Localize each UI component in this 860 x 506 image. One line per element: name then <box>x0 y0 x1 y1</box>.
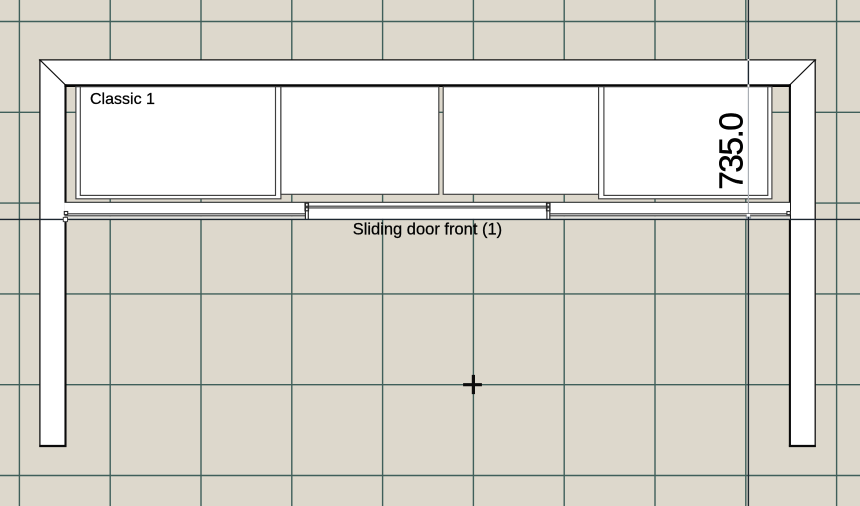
svg-text:Classic 1: Classic 1 <box>90 91 155 108</box>
svg-text:Sliding door front (1): Sliding door front (1) <box>353 221 503 239</box>
svg-text:735.0: 735.0 <box>714 113 751 190</box>
